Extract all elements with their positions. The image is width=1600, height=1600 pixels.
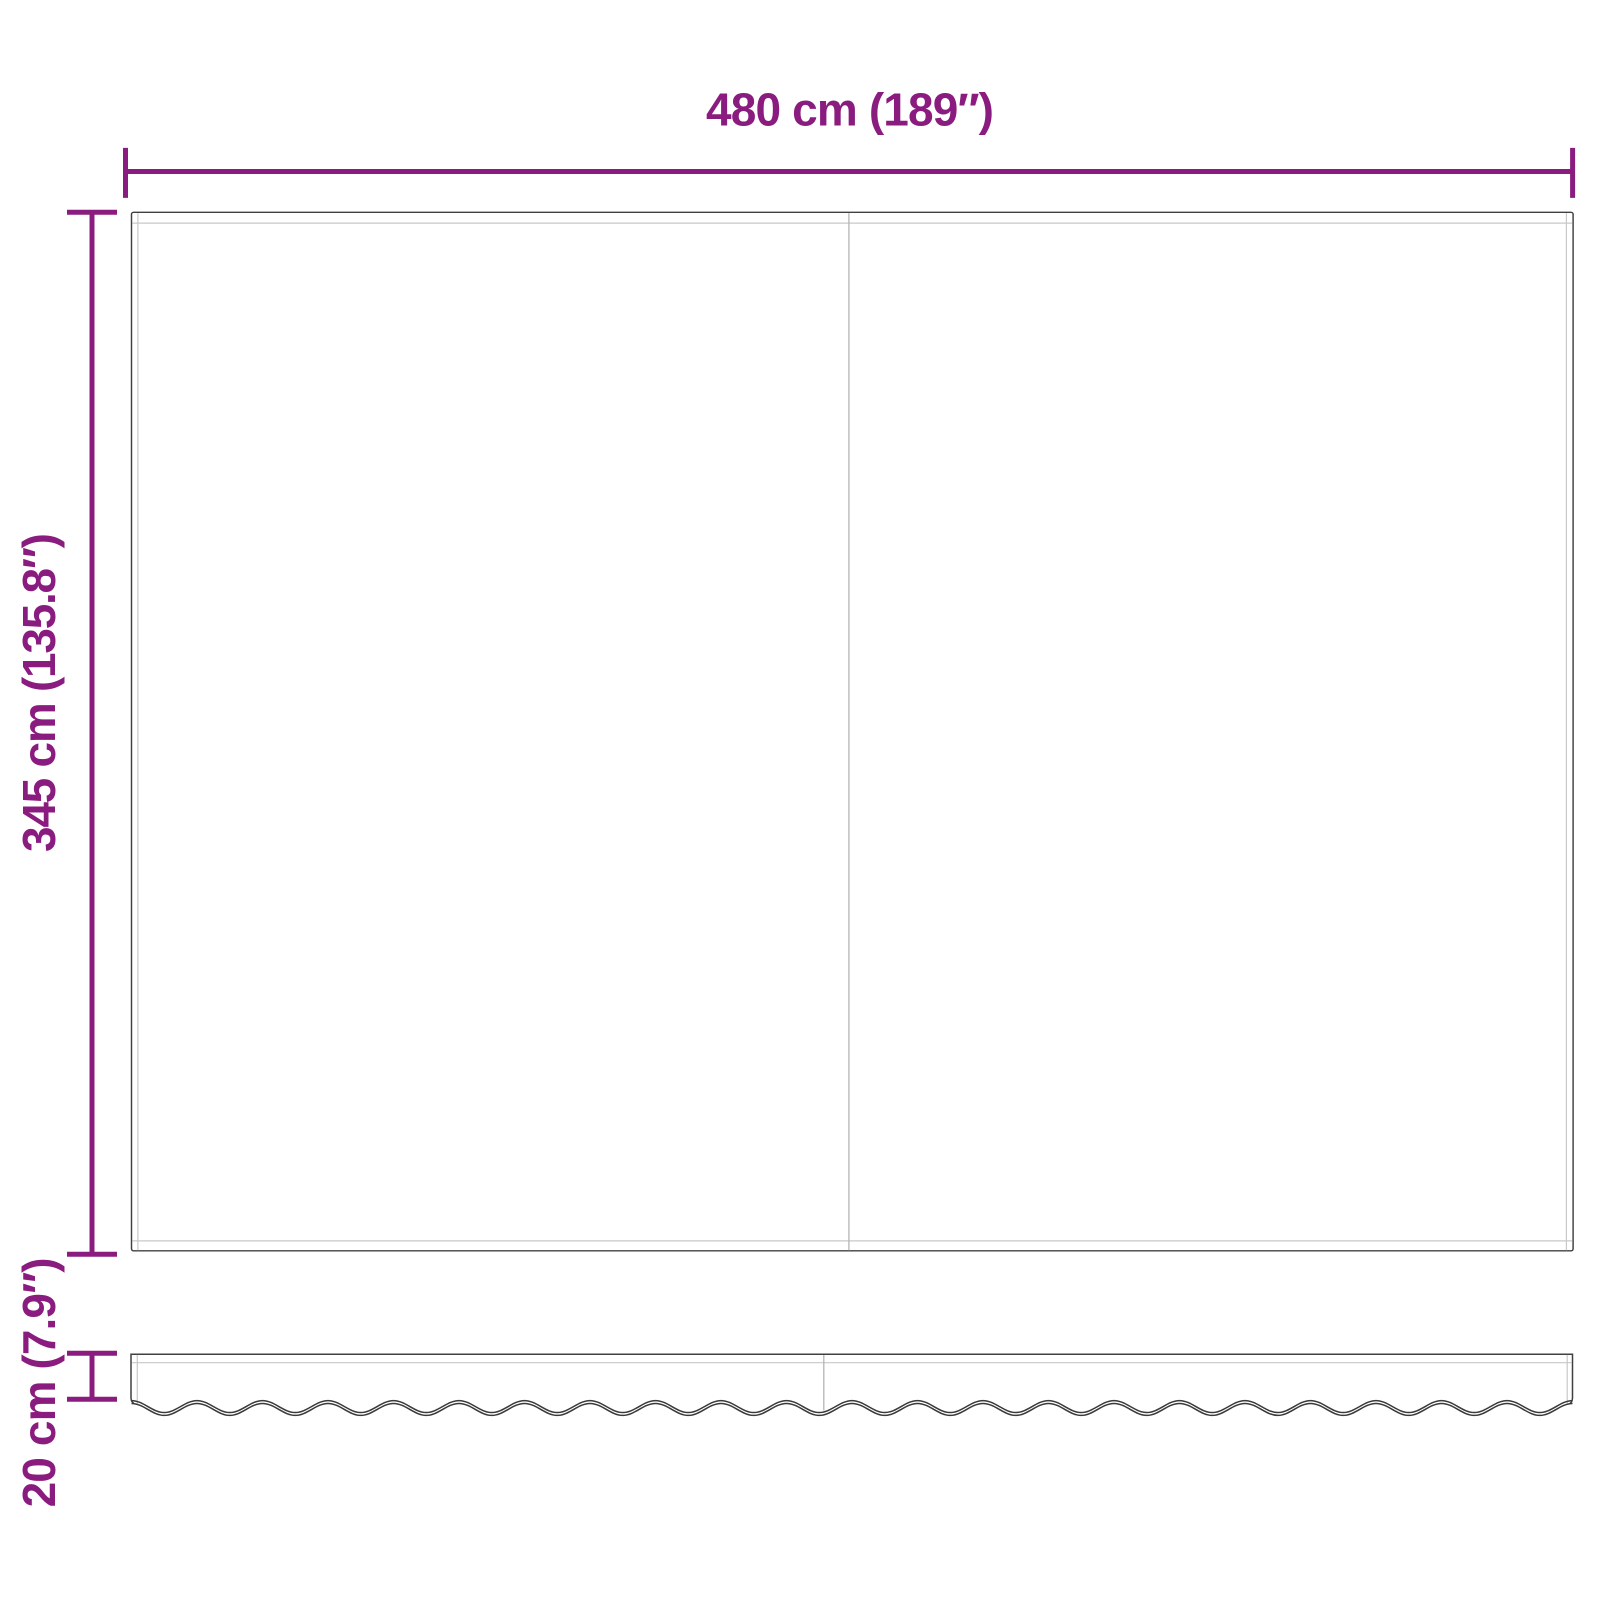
svg-text:480 cm (189″): 480 cm (189″) bbox=[706, 84, 994, 136]
svg-text:20 cm (7.9″): 20 cm (7.9″) bbox=[13, 1257, 65, 1507]
svg-text:345 cm (135.8″): 345 cm (135.8″) bbox=[13, 533, 65, 852]
